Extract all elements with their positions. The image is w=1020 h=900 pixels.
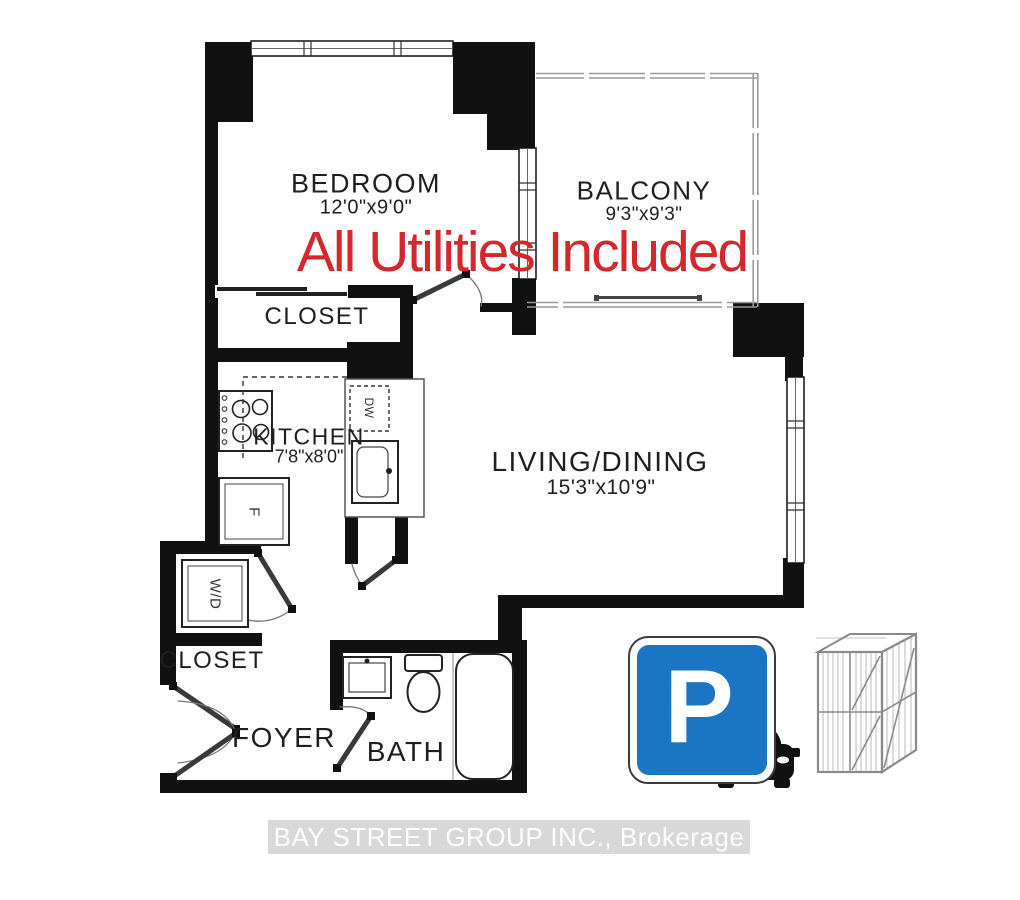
balcony-label: BALCONY bbox=[577, 176, 712, 207]
bath-label: BATH bbox=[367, 736, 446, 768]
bedroom-closet-sliding-door bbox=[215, 285, 348, 298]
toilet bbox=[405, 655, 442, 712]
balcony-sliding-door bbox=[594, 295, 702, 301]
fridge-label: F bbox=[246, 507, 263, 517]
laundry-door bbox=[248, 549, 296, 621]
foyer-label: FOYER bbox=[232, 722, 336, 754]
kitchen-dimensions: 7'8"x8'0" bbox=[275, 447, 344, 468]
kitchen-hall-door bbox=[352, 556, 400, 590]
foyer-closet-label: CLOSET bbox=[159, 647, 264, 675]
bathtub bbox=[453, 653, 513, 780]
bedroom-dimensions: 12'0"x9'0" bbox=[320, 197, 412, 220]
bath-sink bbox=[343, 657, 391, 698]
washer-dryer-label: W/D bbox=[207, 579, 224, 610]
foyer-closet-door bbox=[169, 682, 240, 763]
parking-letter: P bbox=[664, 655, 733, 759]
parking-sign-blue-panel: P bbox=[637, 645, 767, 775]
living-dining-label: LIVING/DINING bbox=[491, 446, 708, 478]
bedroom-closet-label: CLOSET bbox=[264, 303, 369, 331]
living-dining-dimensions: 15'3"x10'9" bbox=[546, 476, 655, 500]
floor-plan-page: BEDROOM 12'0"x9'0" BALCONY 9'3"x9'3" CLO… bbox=[0, 0, 1020, 900]
dishwasher-label: DW bbox=[362, 398, 376, 419]
storage-locker bbox=[816, 634, 916, 772]
brokerage-watermark: BAY STREET GROUP INC., Brokerage bbox=[268, 820, 750, 854]
parking-sign: P bbox=[628, 636, 776, 784]
bedroom-label: BEDROOM bbox=[291, 169, 441, 200]
all-utilities-included-text: All Utilities Included bbox=[297, 219, 747, 285]
